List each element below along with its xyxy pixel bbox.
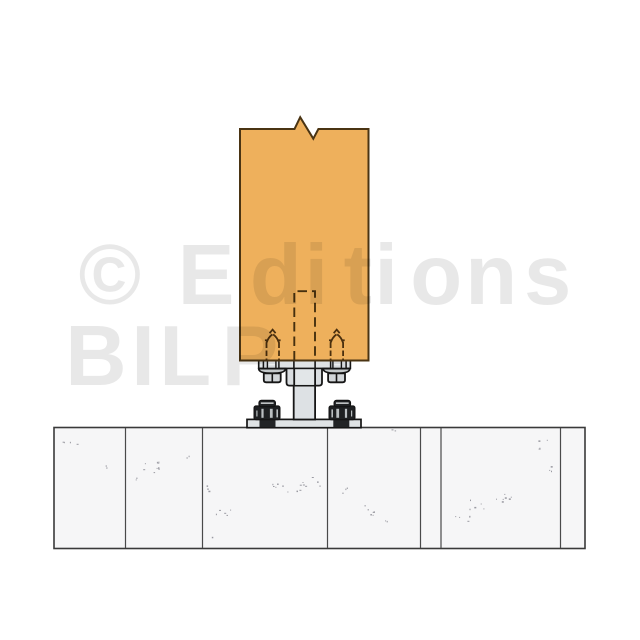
svg-text:BILP: BILP — [65, 309, 278, 404]
